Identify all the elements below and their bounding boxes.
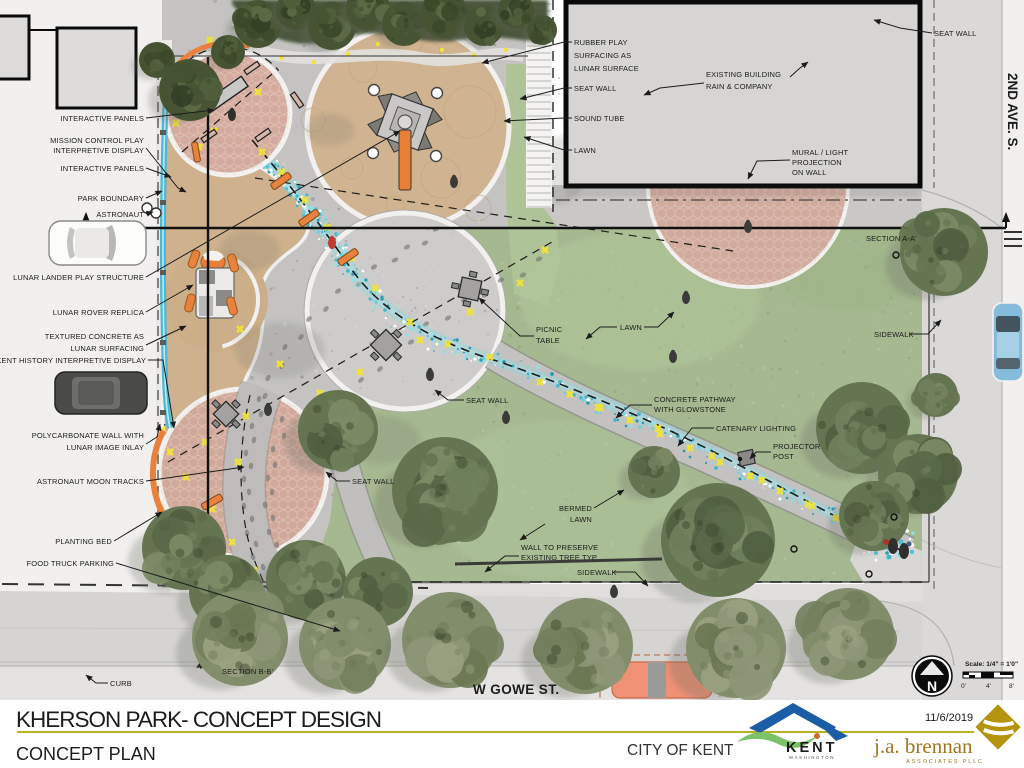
svg-text:PARK BOUNDARY: PARK BOUNDARY [78,194,144,203]
svg-text:LAWN: LAWN [620,323,642,332]
svg-text:ASTRONAUT MOON TRACKS: ASTRONAUT MOON TRACKS [37,477,144,486]
svg-text:SEAT WALL: SEAT WALL [352,477,394,486]
svg-text:LUNAR IMAGE INLAY: LUNAR IMAGE INLAY [67,443,144,452]
svg-text:W GOWE ST.: W GOWE ST. [473,682,560,697]
svg-text:LUNAR SURFACING: LUNAR SURFACING [70,344,144,353]
svg-text:ASTRONAUT: ASTRONAUT [96,210,144,219]
svg-text:MURAL / LIGHT: MURAL / LIGHT [792,148,849,157]
svg-text:2ND AVE. S.: 2ND AVE. S. [1005,73,1020,150]
svg-text:TABLE: TABLE [536,336,560,345]
svg-text:MISSION CONTROL PLAY: MISSION CONTROL PLAY [50,136,144,145]
svg-text:BERMED: BERMED [559,504,592,513]
svg-text:INTERACTIVE PANELS: INTERACTIVE PANELS [61,114,144,123]
svg-text:SIDEWALK: SIDEWALK [577,568,617,577]
svg-text:4': 4' [986,683,991,690]
svg-text:EXISTING BUILDING: EXISTING BUILDING [706,70,781,79]
svg-text:CATENARY LIGHTING: CATENARY LIGHTING [716,424,796,433]
svg-text:CONCRETE PATHWAY: CONCRETE PATHWAY [654,395,736,404]
svg-text:LUNAR LANDER PLAY STRUCTURE: LUNAR LANDER PLAY STRUCTURE [13,273,144,282]
svg-text:PROJECTION: PROJECTION [792,158,842,167]
svg-text:KENT HISTORY INTERPRETIVE DISP: KENT HISTORY INTERPRETIVE DISPLAY [0,356,146,365]
svg-text:Scale: 1/4" = 1'0": Scale: 1/4" = 1'0" [965,661,1018,668]
svg-text:POLYCARBONATE WALL WITH: POLYCARBONATE WALL WITH [32,431,144,440]
svg-text:SURFACING AS: SURFACING AS [574,51,631,60]
svg-text:ON WALL: ON WALL [792,168,827,177]
svg-text:PICNIC: PICNIC [536,325,563,334]
svg-text:RUBBER PLAY: RUBBER PLAY [574,38,628,47]
svg-text:WASHINGTON: WASHINGTON [789,755,835,760]
svg-text:CITY OF KENT: CITY OF KENT [627,742,734,759]
svg-text:KHERSON PARK- CONCEPT DESIGN: KHERSON PARK- CONCEPT DESIGN [16,707,381,732]
svg-text:0': 0' [961,683,966,690]
svg-text:EXISTING TREE TYP.: EXISTING TREE TYP. [521,553,598,562]
svg-text:KENT: KENT [786,740,837,756]
svg-text:FOOD TRUCK PARKING: FOOD TRUCK PARKING [27,559,114,568]
svg-text:ASSOCIATES PLLC: ASSOCIATES PLLC [906,759,984,765]
svg-text:PROJECTOR: PROJECTOR [773,442,821,451]
svg-text:PLANTING BED: PLANTING BED [55,537,112,546]
svg-text:SOUND TUBE: SOUND TUBE [574,114,625,123]
svg-text:CURB: CURB [110,679,132,688]
svg-text:SECTION B-B': SECTION B-B' [222,667,274,676]
svg-text:11/6/2019: 11/6/2019 [925,712,973,724]
svg-text:SECTION A-A': SECTION A-A' [866,234,917,243]
svg-text:SEAT WALL: SEAT WALL [574,84,616,93]
svg-text:POST: POST [773,452,794,461]
svg-text:LUNAR SURFACE: LUNAR SURFACE [574,64,639,73]
svg-text:SIDEWALK: SIDEWALK [874,330,914,339]
svg-text:WALL TO PRESERVE: WALL TO PRESERVE [521,543,598,552]
svg-text:RAIN & COMPANY: RAIN & COMPANY [706,82,773,91]
svg-text:j.a. brennan: j.a. brennan [873,734,973,758]
svg-text:8': 8' [1009,683,1014,690]
svg-text:SEAT WALL: SEAT WALL [934,29,976,38]
svg-text:WITH GLOWSTONE: WITH GLOWSTONE [654,405,726,414]
svg-text:LAWN: LAWN [570,515,592,524]
svg-text:TEXTURED CONCRETE AS: TEXTURED CONCRETE AS [45,332,144,341]
svg-text:LUNAR ROVER REPLICA: LUNAR ROVER REPLICA [53,308,144,317]
svg-text:LAWN: LAWN [574,146,596,155]
svg-text:SEAT WALL: SEAT WALL [466,396,508,405]
svg-text:N: N [927,678,937,694]
svg-text:INTERPRETIVE DISPLAY: INTERPRETIVE DISPLAY [53,146,144,155]
svg-text:INTERACTIVE PANELS: INTERACTIVE PANELS [61,164,144,173]
svg-text:CONCEPT PLAN: CONCEPT PLAN [16,744,156,764]
